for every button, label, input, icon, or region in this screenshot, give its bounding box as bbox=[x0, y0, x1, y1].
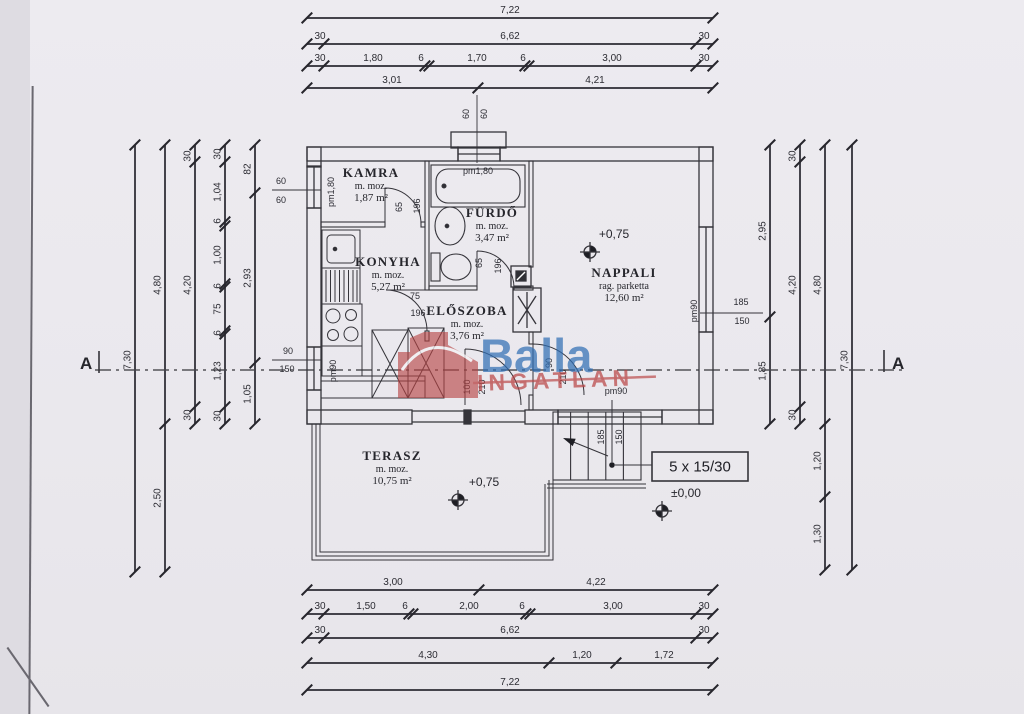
dim-label: 6 bbox=[519, 601, 525, 612]
opening-tag: 185 bbox=[596, 429, 606, 444]
dim-label: 30 bbox=[183, 409, 194, 420]
dim-label: 7,30 bbox=[840, 350, 851, 369]
dim-label: 6,62 bbox=[500, 31, 519, 42]
dim-label: 30 bbox=[314, 625, 325, 636]
dim-label: 2,50 bbox=[153, 488, 164, 507]
dim-label: 6 bbox=[418, 53, 424, 64]
dim-label: 6 bbox=[213, 283, 224, 289]
opening-tag: 65 bbox=[394, 202, 404, 212]
dim-line bbox=[769, 145, 770, 424]
dim-label: 2,93 bbox=[243, 268, 254, 287]
dim-label: 1,23 bbox=[213, 361, 224, 380]
dim-line bbox=[164, 145, 165, 572]
dim-label: 4,80 bbox=[813, 275, 824, 294]
dim-line bbox=[307, 589, 713, 590]
opening-tag: 150 bbox=[279, 364, 294, 374]
dim-label: 30 bbox=[183, 150, 194, 161]
dim-label: 30 bbox=[788, 409, 799, 420]
opening-tag: 60 bbox=[276, 176, 286, 186]
dim-line bbox=[254, 145, 255, 424]
dim-line bbox=[194, 145, 195, 424]
dim-line bbox=[307, 689, 713, 690]
dim-label: 3,01 bbox=[382, 75, 401, 86]
dim-line bbox=[307, 662, 713, 663]
dim-label: 6 bbox=[520, 53, 526, 64]
dim-line bbox=[307, 65, 713, 66]
dim-label: 6 bbox=[213, 330, 224, 336]
dim-line bbox=[799, 145, 800, 424]
dim-label: 30 bbox=[213, 410, 224, 421]
dim-label: 7,22 bbox=[500, 677, 519, 688]
dim-line bbox=[851, 145, 852, 570]
dim-label: 30 bbox=[698, 31, 709, 42]
opening-tag: 60 bbox=[276, 195, 286, 205]
dim-label: 4,30 bbox=[418, 650, 437, 661]
opening-tag: 65 bbox=[474, 258, 484, 268]
dim-line bbox=[307, 87, 713, 88]
dim-label: 1,05 bbox=[243, 384, 254, 403]
dim-label: 1,04 bbox=[213, 182, 224, 201]
dim-label: 6 bbox=[402, 601, 408, 612]
dim-line bbox=[307, 613, 713, 614]
dim-label: 7,22 bbox=[500, 5, 519, 16]
dim-label: 30 bbox=[788, 150, 799, 161]
opening-tag: 196 bbox=[412, 198, 422, 213]
opening-tag: pm90 bbox=[605, 386, 628, 396]
dim-label: 30 bbox=[213, 148, 224, 159]
dim-label: 30 bbox=[314, 53, 325, 64]
dim-label: 30 bbox=[314, 31, 325, 42]
opening-tag: 60 bbox=[479, 109, 489, 119]
dim-label: 1,50 bbox=[356, 601, 375, 612]
dim-line bbox=[824, 145, 825, 570]
opening-tag: 150 bbox=[614, 429, 624, 444]
dim-label: 82 bbox=[243, 163, 254, 174]
opening-tag: pm90 bbox=[689, 300, 699, 323]
opening-tag: 196 bbox=[493, 258, 503, 273]
dim-label: 1,20 bbox=[572, 650, 591, 661]
dim-label: 4,22 bbox=[586, 577, 605, 588]
dim-label: 3,00 bbox=[602, 53, 621, 64]
dim-label: 30 bbox=[698, 601, 709, 612]
dim-label: 6,62 bbox=[500, 625, 519, 636]
dim-label: 1,85 bbox=[758, 361, 769, 380]
opening-tag: 196 bbox=[410, 308, 425, 318]
opening-tag: 210 bbox=[558, 369, 568, 384]
dim-label: 30 bbox=[314, 601, 325, 612]
opening-tag: 185 bbox=[733, 297, 748, 307]
opening-tag: 210 bbox=[477, 379, 487, 394]
dim-label: 30 bbox=[698, 53, 709, 64]
dim-label: 3,00 bbox=[383, 577, 402, 588]
dim-line bbox=[307, 17, 713, 18]
dimension-layer: 7,22306,6230301,8061,7063,00303,014,213,… bbox=[0, 0, 1024, 714]
opening-tag: pm90 bbox=[328, 360, 338, 383]
dim-label: 75 bbox=[213, 303, 224, 314]
dim-label: 3,00 bbox=[603, 601, 622, 612]
dim-line bbox=[307, 637, 713, 638]
dim-label: 1,70 bbox=[467, 53, 486, 64]
floor-plan-page: KAMRA m. moz. 1,87 m² FÜRDŐ m. moz. 3,47… bbox=[0, 0, 1024, 714]
dim-label: 1,30 bbox=[813, 524, 824, 543]
opening-tag: 150 bbox=[734, 316, 749, 326]
opening-tag: 75 bbox=[410, 291, 420, 301]
dim-label: 1,00 bbox=[213, 245, 224, 264]
dim-line bbox=[307, 43, 713, 44]
dim-label: 2,00 bbox=[459, 601, 478, 612]
dim-label: 1,80 bbox=[363, 53, 382, 64]
opening-tag: 90 bbox=[283, 346, 293, 356]
dim-label: 2,95 bbox=[758, 221, 769, 240]
opening-tag: 60 bbox=[461, 109, 471, 119]
dim-line bbox=[134, 145, 135, 572]
dim-label: 4,20 bbox=[183, 275, 194, 294]
dim-label: 30 bbox=[698, 625, 709, 636]
dim-label: 6 bbox=[213, 218, 224, 224]
opening-tag: pm1,80 bbox=[463, 166, 493, 176]
opening-tag: 100 bbox=[462, 379, 472, 394]
dim-label: 4,20 bbox=[788, 275, 799, 294]
dim-label: 4,21 bbox=[585, 75, 604, 86]
opening-tag: pm1,80 bbox=[326, 177, 336, 207]
dim-label: 1,20 bbox=[813, 451, 824, 470]
opening-tag: 90 bbox=[544, 358, 554, 368]
dim-label: 4,80 bbox=[153, 275, 164, 294]
dim-label: 1,72 bbox=[654, 650, 673, 661]
dim-label: 7,30 bbox=[123, 350, 134, 369]
